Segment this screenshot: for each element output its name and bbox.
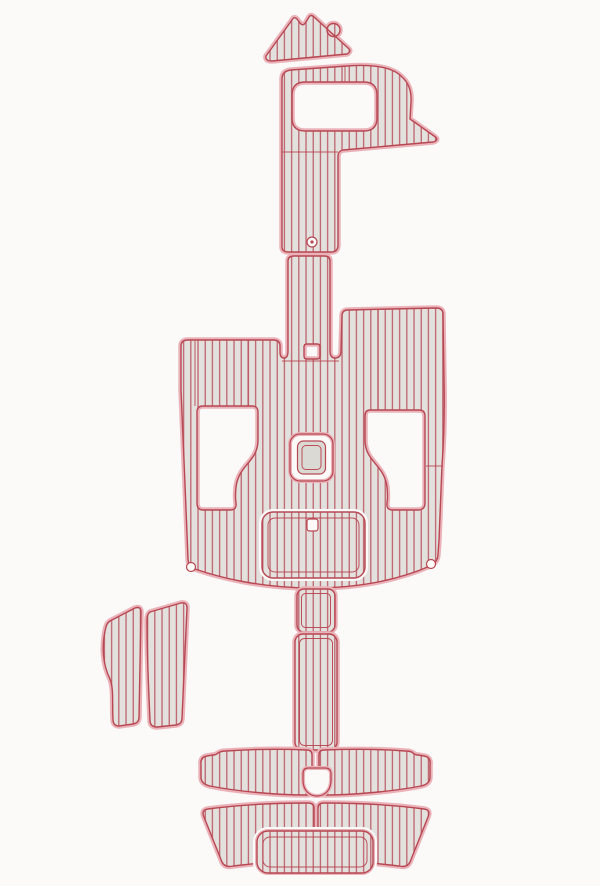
swim-platform-upper-left bbox=[201, 749, 312, 795]
bow-walkway-pad bbox=[282, 65, 437, 252]
step-strip-lower bbox=[295, 634, 337, 750]
swim-platform-upper-right bbox=[319, 749, 430, 795]
step-strip-upper bbox=[297, 589, 335, 632]
center-hatch-cutout bbox=[290, 434, 333, 481]
latch-hole bbox=[307, 519, 318, 531]
bow-wedge-pad bbox=[266, 16, 350, 62]
corner-notch-right bbox=[427, 560, 436, 569]
deck-pad-template bbox=[0, 0, 600, 886]
cockpit-main-pad bbox=[181, 256, 444, 588]
side-step-pad-right bbox=[147, 603, 187, 727]
product-image bbox=[0, 0, 600, 886]
corner-notch-left bbox=[187, 563, 196, 572]
swim-platform-center-pad bbox=[257, 831, 373, 873]
side-step-pad-left bbox=[103, 608, 141, 727]
engine-hatch-panel bbox=[262, 512, 365, 578]
ladder-notch-cutout bbox=[303, 768, 331, 796]
